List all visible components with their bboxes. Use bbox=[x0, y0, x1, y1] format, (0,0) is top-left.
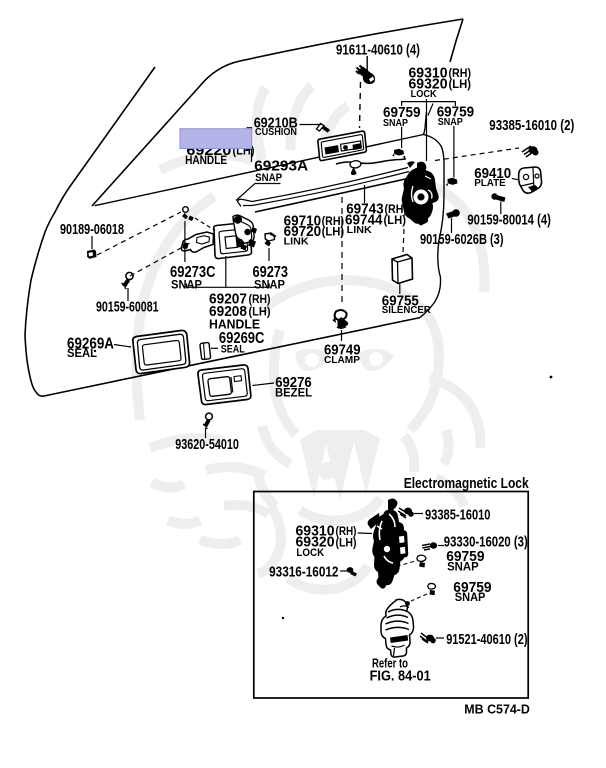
svg-text:PLATE: PLATE bbox=[474, 177, 506, 189]
svg-text:SNAP: SNAP bbox=[254, 277, 285, 291]
svg-text:(LH): (LH) bbox=[336, 535, 357, 549]
svg-text:FIG. 84-01: FIG. 84-01 bbox=[370, 669, 431, 685]
svg-text:SNAP: SNAP bbox=[383, 117, 408, 129]
svg-text:CLAMP: CLAMP bbox=[324, 354, 360, 366]
svg-text:CUSHION: CUSHION bbox=[255, 126, 297, 138]
svg-text:SNAP: SNAP bbox=[438, 116, 463, 128]
svg-text:90159-60081: 90159-60081 bbox=[96, 299, 159, 316]
svg-text:BEZEL: BEZEL bbox=[275, 387, 312, 399]
svg-text:LINK: LINK bbox=[347, 224, 372, 236]
svg-text:90159-6026B (3): 90159-6026B (3) bbox=[420, 231, 504, 248]
svg-text:(LH): (LH) bbox=[322, 224, 345, 238]
svg-text:93385-16010 (2): 93385-16010 (2) bbox=[489, 117, 574, 134]
svg-text:SEAL: SEAL bbox=[221, 343, 245, 355]
svg-text:(LH): (LH) bbox=[449, 77, 472, 91]
svg-text:SEAL: SEAL bbox=[67, 348, 97, 360]
svg-text:(LH): (LH) bbox=[384, 213, 407, 227]
svg-text:91521-40610 (2): 91521-40610 (2) bbox=[446, 632, 527, 648]
svg-text:93385-16010: 93385-16010 bbox=[425, 507, 491, 523]
svg-text:93620-54010: 93620-54010 bbox=[175, 436, 239, 453]
svg-text:SNAP: SNAP bbox=[455, 590, 486, 604]
svg-text:SILENCER: SILENCER bbox=[382, 304, 431, 316]
svg-text:LOCK: LOCK bbox=[411, 88, 437, 100]
svg-text:91611-40610 (4): 91611-40610 (4) bbox=[336, 42, 420, 59]
svg-text:SNAP: SNAP bbox=[255, 172, 282, 184]
svg-text:LOCK: LOCK bbox=[296, 547, 324, 559]
svg-text:LINK: LINK bbox=[284, 236, 309, 248]
svg-text:Electromagnetic Lock: Electromagnetic Lock bbox=[404, 475, 530, 492]
svg-text:HANDLE: HANDLE bbox=[209, 317, 260, 331]
svg-text:93316-16012: 93316-16012 bbox=[269, 565, 338, 581]
svg-text:MB C574-D: MB C574-D bbox=[464, 702, 530, 717]
svg-text:SNAP: SNAP bbox=[447, 560, 479, 574]
svg-text:HANDLE: HANDLE bbox=[185, 155, 227, 167]
svg-text:SNAP: SNAP bbox=[171, 277, 202, 291]
svg-text:90159-80014 (4): 90159-80014 (4) bbox=[467, 212, 551, 229]
svg-text:90189-06018: 90189-06018 bbox=[60, 221, 124, 238]
